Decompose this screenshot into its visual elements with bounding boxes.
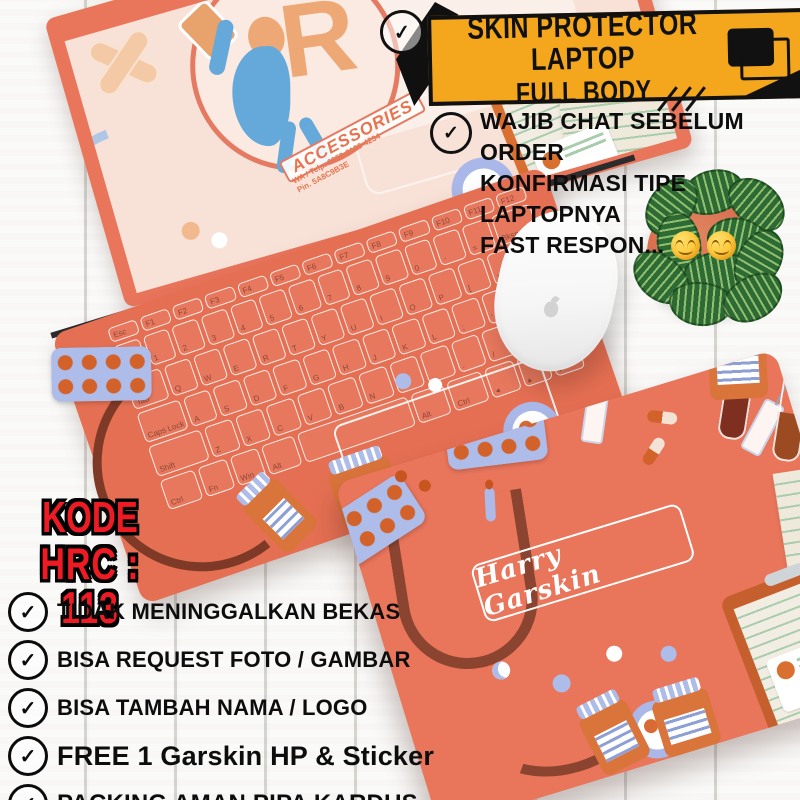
stethoscope-earpiece	[484, 487, 496, 521]
key-[: [	[456, 257, 492, 295]
bottle-label	[589, 716, 644, 767]
laptop-icon-outline	[740, 37, 791, 80]
check-circle-icon: ✓	[8, 736, 48, 776]
check-circle-icon: ✓	[8, 640, 48, 680]
order-note: ✓ WAJIB CHAT SEBELUM ORDER KONFIRMASI TI…	[424, 106, 796, 261]
key-;: ;	[450, 297, 486, 336]
clipboard-clip	[763, 562, 800, 588]
key-g: G	[302, 348, 338, 387]
checklist-label: PACKING AMAN PIPA KARDUS	[57, 790, 418, 800]
pill-icon	[417, 478, 432, 493]
note-line-3: FAST RESPON...	[480, 230, 796, 261]
bottle-label	[712, 350, 764, 389]
pill-blister-icon	[51, 346, 152, 402]
product-ad-canvas: R ACCESSORIES WA / Telp. 0852-0120-4234 …	[0, 0, 800, 800]
apple-logo-icon	[543, 300, 560, 319]
key-5: 5	[258, 288, 293, 326]
key-6: 6	[287, 278, 322, 316]
note-line-2: KONFIRMASI TIPE LAPTOPNYA	[480, 168, 796, 230]
key-.: .	[450, 334, 487, 373]
feature-checklist: ✓ TIDAK MENINGGALKAN BEKAS ✓ BISA REQUES…	[8, 592, 448, 800]
key-l: L	[420, 307, 456, 346]
key-y: Y	[310, 308, 346, 346]
pill-icon	[659, 644, 679, 664]
key-2: 2	[171, 318, 206, 356]
logo-letter: R	[274, 0, 363, 95]
key-k: K	[391, 317, 427, 356]
key-t: T	[280, 318, 316, 356]
pill-jar-icon	[707, 350, 769, 401]
key-n: N	[358, 366, 395, 405]
check-circle-icon: ✓	[8, 688, 48, 728]
key-b: B	[327, 376, 364, 415]
checklist-item: ✓ FREE 1 Garskin HP & Sticker	[8, 736, 448, 776]
checklist-label: TIDAK MENINGGALKAN BEKAS	[57, 599, 400, 625]
note-line-3-text: FAST RESPON...	[480, 232, 664, 258]
key-h: H	[331, 338, 367, 377]
check-circle-icon: ✓	[430, 112, 472, 154]
note-line-1: WAJIB CHAT SEBELUM ORDER	[480, 106, 796, 168]
key-7: 7	[316, 268, 351, 306]
checklist-label: BISA TAMBAH NAMA / LOGO	[57, 695, 368, 721]
key-3: 3	[200, 308, 235, 346]
checklist-item: ✓ TIDAK MENINGGALKAN BEKAS	[8, 592, 448, 632]
key-o: O	[398, 277, 434, 315]
key-r: R	[251, 328, 287, 366]
laptop-icon	[727, 25, 798, 82]
banner-title-line1: SKIN PROTECTOR LAPTOP	[437, 7, 728, 79]
checklist-label: BISA REQUEST FOTO / GAMBAR	[57, 647, 411, 673]
check-circle-icon: ✓	[8, 592, 48, 632]
key-i: I	[368, 288, 404, 326]
check-circle-icon: ✓	[8, 784, 48, 800]
key-j: J	[361, 327, 397, 366]
key-9: 9	[374, 248, 409, 286]
capsule-icon	[641, 435, 667, 467]
product-code-word: KODE	[7, 496, 173, 539]
checklist-item: ✓ BISA TAMBAH NAMA / LOGO	[8, 688, 448, 728]
bottle-label	[659, 704, 716, 749]
checklist-label: FREE 1 Garskin HP & Sticker	[57, 741, 434, 772]
key-4: 4	[229, 298, 264, 336]
key-8: 8	[345, 258, 380, 296]
smile-emoji	[707, 231, 736, 260]
checklist-item: ✓ PACKING AMAN PIPA KARDUS	[8, 784, 448, 800]
capsule-icon	[647, 410, 678, 426]
key-p: P	[427, 267, 463, 305]
order-note-text: WAJIB CHAT SEBELUM ORDER KONFIRMASI TIPE…	[480, 106, 796, 261]
key-u: U	[339, 298, 375, 336]
smile-emoji	[671, 231, 700, 260]
checklist-item: ✓ BISA REQUEST FOTO / GAMBAR	[8, 640, 448, 680]
title-banner: SKIN PROTECTOR LAPTOP FULL BODY	[427, 8, 800, 106]
